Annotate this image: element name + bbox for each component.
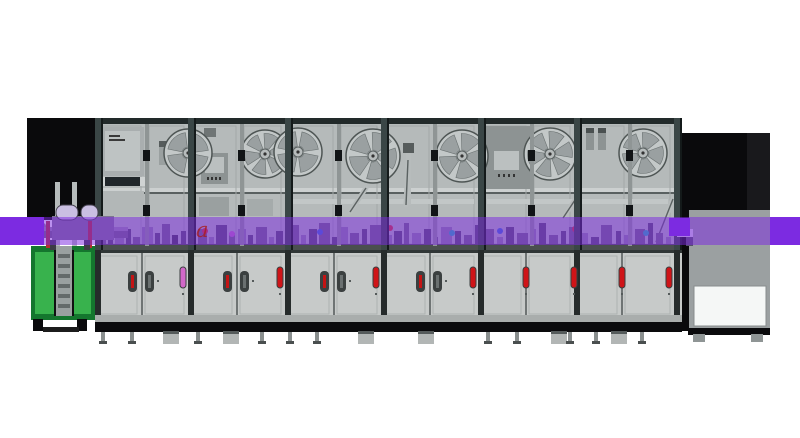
reel-axle — [641, 151, 644, 154]
door-hinge — [238, 150, 245, 161]
reel-axle — [263, 152, 266, 155]
lower-kick-rail — [95, 315, 682, 322]
watermark-letter: a — [196, 218, 209, 242]
cabinet-column — [478, 250, 484, 315]
machine-base — [95, 322, 682, 332]
conveyor-band-left — [0, 217, 44, 245]
ladder-rung — [58, 264, 70, 268]
utility-box-lid — [611, 331, 627, 334]
leveling-foot-pad — [313, 341, 321, 344]
indicator-light — [373, 267, 379, 288]
indicator-dot — [375, 293, 377, 295]
lower-panel — [101, 191, 144, 216]
hmi-button — [207, 177, 209, 180]
right-tower-window — [694, 286, 766, 326]
reel-axle — [548, 152, 551, 155]
left-tower-body — [27, 118, 95, 220]
dark-bar — [100, 177, 145, 186]
utility-box-lid — [418, 331, 434, 334]
door-screw — [252, 280, 254, 282]
utility-box-lid — [163, 331, 179, 334]
leveling-foot — [640, 332, 644, 341]
hmi-button — [219, 177, 221, 180]
ladder-rung — [58, 274, 70, 278]
conveyor-band-joint — [669, 218, 690, 236]
indicator-dot — [472, 293, 474, 295]
door-hinge — [528, 205, 535, 216]
door-hinge — [143, 205, 150, 216]
cabinet-column — [95, 250, 101, 315]
right-tower-hood-shade — [747, 133, 770, 210]
leveling-foot — [101, 332, 105, 341]
door-handle-grip — [340, 275, 343, 288]
reel-axle — [371, 154, 374, 157]
panel-label-line — [109, 135, 120, 137]
right-tower-base — [688, 328, 770, 335]
door-hinge — [143, 150, 150, 161]
cabinet-column — [674, 250, 680, 315]
ladder-rung — [58, 284, 70, 288]
utility-box-lid — [551, 331, 567, 334]
reel-axle — [296, 150, 299, 153]
conveyor-band-right — [770, 217, 800, 245]
assembly-line-render: a — [0, 0, 800, 438]
lower-top-rail — [95, 250, 682, 253]
leveling-foot-pad — [99, 341, 107, 344]
indicator-dot — [279, 293, 281, 295]
green-station-panel — [35, 252, 54, 314]
leveling-foot — [568, 332, 572, 341]
ladder-rung — [58, 254, 70, 258]
hmi-button — [211, 177, 213, 180]
cabinet-column — [285, 250, 291, 315]
leveling-foot — [196, 332, 200, 341]
leveling-foot — [315, 332, 319, 341]
leveling-foot — [515, 332, 519, 341]
control-button — [508, 174, 510, 177]
door-handle-grip — [323, 275, 326, 288]
gear-box — [247, 199, 273, 216]
leveling-foot-pad — [484, 341, 492, 344]
ladder-rung — [58, 294, 70, 298]
door-hinge — [238, 205, 245, 216]
cabinet-door-gap — [429, 253, 431, 315]
indicator-light — [277, 267, 283, 288]
junction-box — [204, 128, 216, 137]
bracket-cap — [586, 128, 594, 133]
control-screen — [494, 151, 519, 170]
control-button — [503, 174, 505, 177]
indicator-light — [523, 267, 529, 288]
door-handle-grip — [243, 275, 246, 288]
bracket-cap — [598, 128, 606, 133]
door-handle-grip — [148, 275, 151, 288]
dark-bar-cap — [140, 177, 145, 186]
door-screw — [349, 280, 351, 282]
leveling-foot-pad — [194, 341, 202, 344]
indicator-light — [619, 267, 625, 288]
door-hinge — [431, 150, 438, 161]
leveling-foot — [486, 332, 490, 341]
leveling-foot-pad — [286, 341, 294, 344]
control-button — [498, 174, 500, 177]
utility-box-lid — [223, 331, 239, 334]
leveling-foot-pad — [566, 341, 574, 344]
panel-label-line — [109, 139, 125, 141]
cabinet-column — [188, 250, 194, 315]
ladder-rung — [58, 304, 70, 308]
door-handle-grip — [436, 275, 439, 288]
indicator-light — [470, 267, 476, 288]
indicator-dot — [525, 293, 527, 295]
indicator-dot — [182, 293, 184, 295]
leveling-foot-pad — [592, 341, 600, 344]
pipe-cap — [403, 143, 414, 153]
leveling-foot — [288, 332, 292, 341]
gear-box — [199, 197, 229, 216]
leveling-foot-pad — [128, 341, 136, 344]
machine-scene: a — [0, 0, 800, 438]
leveling-foot-pad — [638, 341, 646, 344]
door-handle-grip — [419, 275, 422, 288]
machine-foot — [751, 334, 763, 342]
indicator-dot — [573, 293, 575, 295]
indicator-dot — [621, 293, 623, 295]
indicator-dot — [668, 293, 670, 295]
door-handle-grip — [226, 275, 229, 288]
door-handle-grip — [131, 275, 134, 288]
indicator-light — [180, 267, 186, 288]
control-button — [513, 174, 515, 177]
indicator-light — [666, 267, 672, 288]
machine-foot — [693, 334, 705, 342]
cabinet-door-gap — [141, 253, 143, 315]
door-hinge — [528, 150, 535, 161]
leveling-foot — [260, 332, 264, 341]
reel-axle — [460, 154, 463, 157]
cabinet-door-gap — [236, 253, 238, 315]
leveling-foot — [594, 332, 598, 341]
indicator-light — [571, 267, 577, 288]
door-hinge — [335, 150, 342, 161]
door-hinge — [626, 150, 633, 161]
hmi-button — [215, 177, 217, 180]
door-hinge — [431, 205, 438, 216]
caster-bar — [43, 327, 79, 332]
door-hinge — [626, 205, 633, 216]
door-hinge — [335, 205, 342, 216]
leveling-foot-pad — [258, 341, 266, 344]
leveling-foot — [130, 332, 134, 341]
cabinet-column — [381, 250, 387, 315]
cabinet-door-gap — [333, 253, 335, 315]
green-station-panel — [73, 252, 91, 314]
caster-wheel — [33, 319, 43, 331]
leveling-foot-pad — [513, 341, 521, 344]
utility-box-lid — [358, 331, 374, 334]
door-screw — [157, 280, 159, 282]
door-screw — [445, 280, 447, 282]
